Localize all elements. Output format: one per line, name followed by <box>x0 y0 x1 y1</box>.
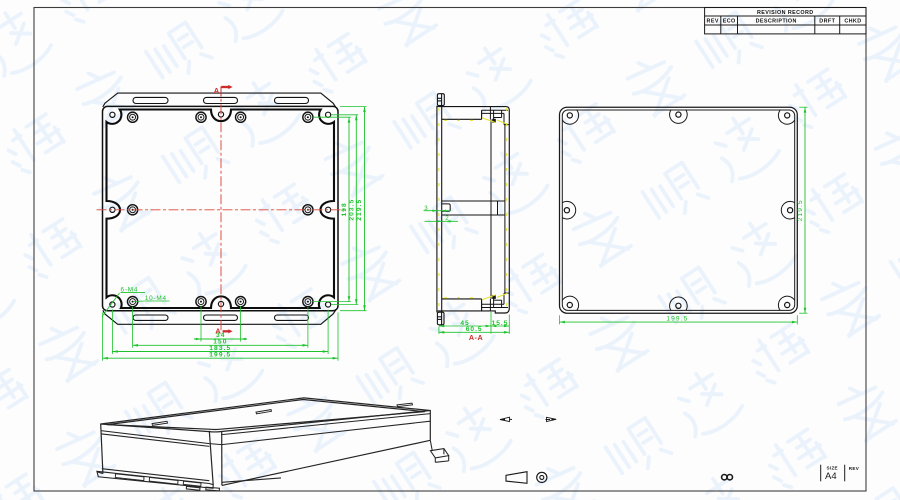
svg-text:DRFT: DRFT <box>819 19 835 25</box>
svg-text:ECO: ECO <box>723 19 736 25</box>
svg-text:REV: REV <box>849 466 860 471</box>
svg-text:DESCRIPTION: DESCRIPTION <box>756 19 797 25</box>
svg-text:CHKD: CHKD <box>844 19 861 25</box>
svg-text:219.5: 219.5 <box>797 199 804 221</box>
svg-text:A: A <box>214 86 220 95</box>
svg-text:A-A: A-A <box>469 333 483 342</box>
svg-text:203.5: 203.5 <box>348 199 355 221</box>
svg-text:REVISION RECORD: REVISION RECORD <box>757 10 814 16</box>
svg-text:219.5: 219.5 <box>356 199 363 221</box>
svg-text:SIZE: SIZE <box>827 465 838 470</box>
svg-text:A4: A4 <box>825 471 837 482</box>
svg-text:15.5: 15.5 <box>492 320 509 327</box>
svg-text:60.5: 60.5 <box>466 326 483 333</box>
svg-text:199.5: 199.5 <box>666 315 688 322</box>
svg-text:198: 198 <box>341 202 348 216</box>
svg-text:199.5: 199.5 <box>209 352 231 359</box>
svg-text:REV: REV <box>707 19 719 25</box>
